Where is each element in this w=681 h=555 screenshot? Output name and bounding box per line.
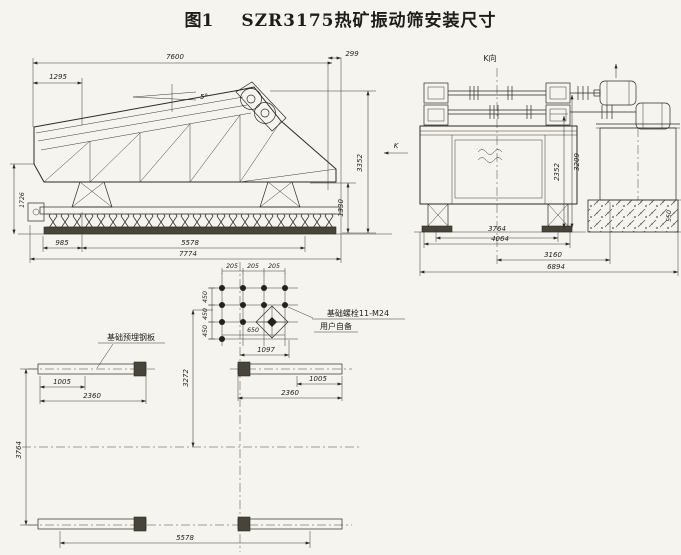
- k-marker-label: K: [394, 142, 400, 150]
- motor-upper: [600, 81, 636, 105]
- discharge-chute-outline: [256, 306, 288, 338]
- foundation-pad-strip: [44, 227, 336, 234]
- screen-mesh-symbol: [478, 150, 502, 163]
- dim-to-plate: 1097: [257, 346, 275, 354]
- bolt-callout-spec: 基础螺栓11-M24: [327, 308, 389, 318]
- installation-drawing: 7600 1295 299 5° 3352 1330: [0, 0, 681, 555]
- dim-plate-inner-left: 1005: [53, 378, 71, 386]
- bolt-callout: 基础螺栓11-M24 用户自备: [288, 307, 405, 332]
- plate-bottom-left: [38, 519, 146, 529]
- screen-body: [34, 87, 336, 182]
- base-beam: [40, 207, 340, 214]
- dim-base-span: 5578: [181, 239, 199, 247]
- dim-group-width: 650: [247, 327, 259, 334]
- k-direction-marker: K: [384, 142, 408, 153]
- motor-lower: [636, 103, 670, 129]
- dim-block-height: 550: [666, 210, 673, 222]
- drive-shafts: [448, 86, 636, 119]
- plate-note: 基础预埋钢板: [107, 332, 155, 342]
- dim-col-spacing-3: 205: [268, 263, 280, 270]
- side-view: 7600 1295 299 5° 3352 1330: [10, 50, 408, 263]
- vibration-spring-row: [46, 214, 336, 227]
- dim-outer-span: 4064: [491, 235, 509, 243]
- dim-motor-span: 3160: [544, 251, 562, 259]
- dim-motor-height: 3209: [573, 153, 581, 171]
- dim-base-front: 985: [55, 239, 69, 247]
- end-view: K向: [414, 53, 681, 276]
- dim-row-spacing-3: 450: [202, 325, 209, 337]
- concrete-block: [588, 200, 678, 232]
- end-view-label: K向: [483, 53, 496, 63]
- dim-overall-height: 3352: [356, 154, 364, 172]
- dim-plate-right: 2360: [281, 389, 299, 397]
- dim-overall-length: 7600: [166, 53, 184, 61]
- dim-feed-offset: 1295: [49, 73, 67, 81]
- dim-discharge-height: 1330: [337, 199, 345, 217]
- end-view-dimensions: 3764 4064 3160 6894 2352 3209 550: [420, 95, 681, 276]
- support-pedestal-front: [72, 182, 112, 207]
- motor-pier: [596, 124, 680, 200]
- dim-plate-left: 2360: [83, 392, 101, 400]
- dim-plate-inner-right: 1005: [309, 375, 327, 383]
- dim-plan-overall: 5578: [176, 534, 194, 542]
- plan-view: 205 205 205 450 450 450 650 1097 3272: [15, 262, 405, 552]
- dim-rear-offset: 299: [345, 50, 359, 58]
- bolt-callout-note: 用户自备: [320, 321, 352, 331]
- drawing-sheet: 图1SZR3175热矿振动筛安装尺寸: [0, 0, 681, 555]
- dim-left-height: 1726: [19, 192, 26, 208]
- dim-col-spacing-2: 205: [247, 263, 259, 270]
- embedded-plates: [28, 362, 352, 531]
- truss-members: [44, 115, 336, 182]
- motor-assembly: [594, 64, 670, 129]
- dim-base-overall: 7774: [179, 250, 197, 258]
- dim-row-span: 3764: [15, 441, 23, 459]
- plate-bottom-right: [238, 519, 342, 529]
- plan-dimensions: 1005 2360 1005 2360 3764 5578: [15, 369, 342, 548]
- dim-bearing-span: 3764: [488, 225, 506, 233]
- dim-axis-offset: 3272: [182, 369, 190, 387]
- dim-shaft-height: 2352: [553, 163, 561, 181]
- support-pedestal-rear: [260, 182, 300, 207]
- left-anchor-bracket: [28, 203, 44, 221]
- dim-overall-width: 6894: [547, 263, 565, 271]
- dim-row-spacing-1: 450: [202, 291, 209, 303]
- dim-col-spacing-1: 205: [226, 263, 238, 270]
- bolt-group-dimensions: 205 205 205 450 450 450 650 1097 3272: [182, 263, 289, 447]
- plate-callout: 基础预埋钢板: [97, 332, 165, 368]
- dim-incline-angle: 5°: [200, 93, 208, 101]
